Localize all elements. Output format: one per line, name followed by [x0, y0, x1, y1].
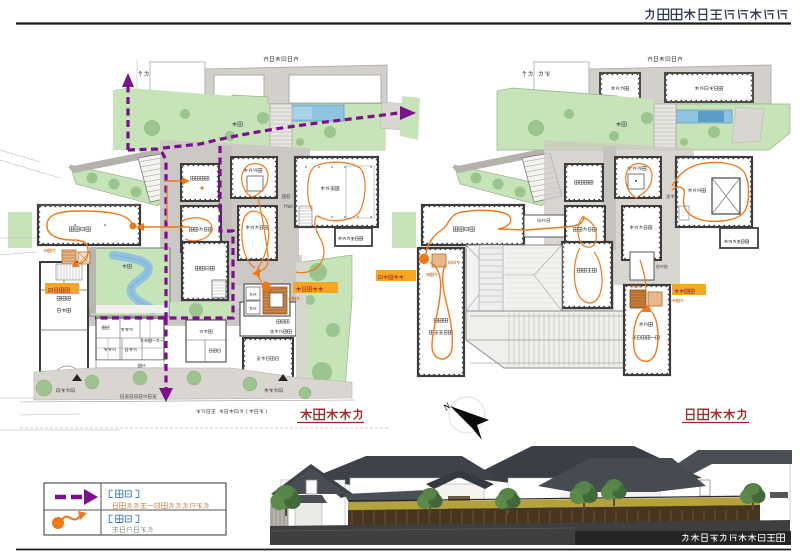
svg-text:Hall: Hall — [284, 204, 293, 210]
